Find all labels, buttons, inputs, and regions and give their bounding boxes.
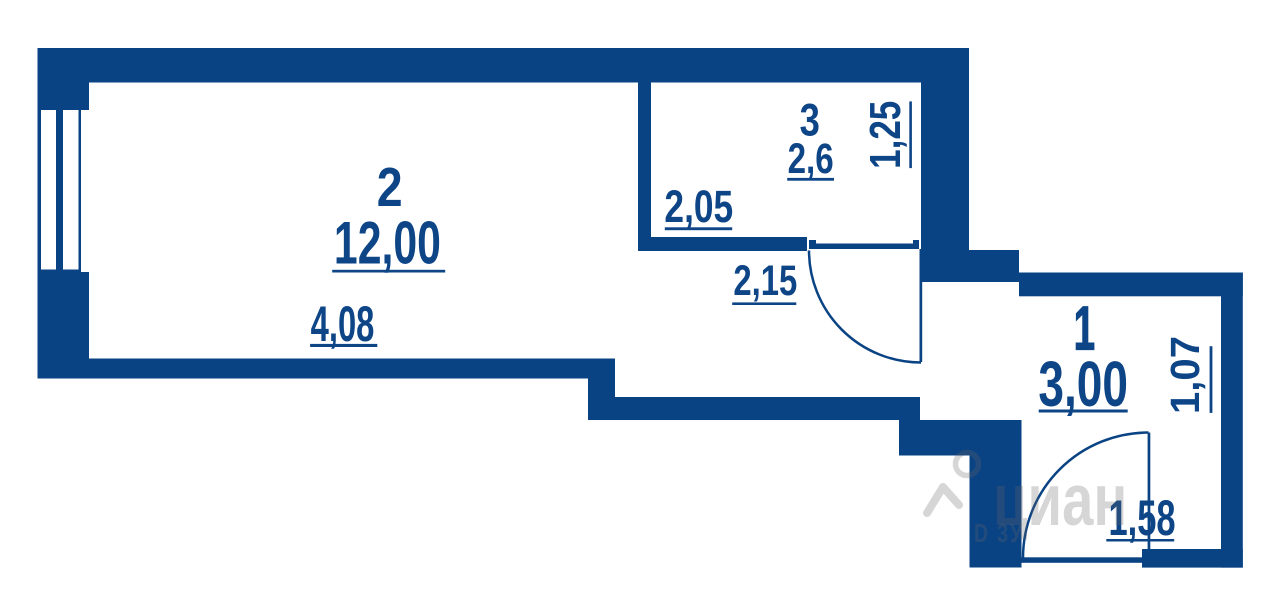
svg-text:1,25: 1,25 [861, 101, 909, 169]
svg-text:2,6: 2,6 [788, 136, 834, 183]
svg-text:D 3У: D 3У [974, 518, 1024, 547]
svg-text:2: 2 [377, 157, 403, 218]
svg-text:2,15: 2,15 [733, 258, 797, 305]
svg-text:4,08: 4,08 [311, 296, 375, 352]
svg-text:1,07: 1,07 [1163, 336, 1208, 414]
svg-text:2,05: 2,05 [664, 181, 733, 232]
svg-text:12,00: 12,00 [334, 210, 441, 277]
svg-text:3,00: 3,00 [1038, 349, 1128, 420]
